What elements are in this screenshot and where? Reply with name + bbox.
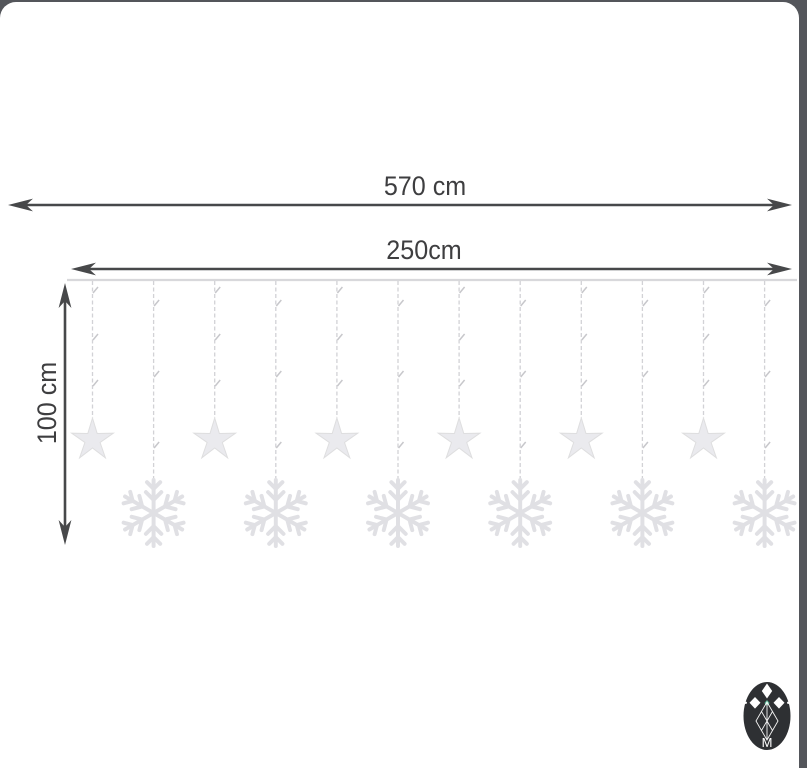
light-string <box>438 281 480 458</box>
led-bulb <box>460 287 465 293</box>
light-string <box>610 281 675 546</box>
label-overall-width: 570 cm <box>332 170 518 202</box>
led-bulb <box>337 380 342 386</box>
light-string <box>243 281 308 546</box>
diagram-svg: M <box>0 0 807 768</box>
light-string <box>488 281 553 546</box>
star-ornament <box>316 418 358 458</box>
led-bulb <box>276 442 281 448</box>
led-bulb <box>582 334 587 340</box>
led-bulb <box>215 334 220 340</box>
brand-logo: M <box>744 682 791 750</box>
led-bulb <box>154 371 159 377</box>
snowflake-ornament <box>243 480 308 546</box>
led-bulb <box>399 442 404 448</box>
snowflake-ornament <box>732 480 797 546</box>
led-bulb <box>521 371 526 377</box>
snowflake-ornament <box>121 480 186 546</box>
led-bulb <box>337 334 342 340</box>
light-string <box>732 281 797 546</box>
light-string <box>560 281 602 458</box>
led-bulb <box>521 442 526 448</box>
led-bulb <box>582 287 587 293</box>
star-ornament <box>438 418 480 458</box>
light-string <box>194 281 236 458</box>
snowflake-ornament <box>366 480 431 546</box>
led-bulb <box>399 371 404 377</box>
led-bulb <box>93 334 98 340</box>
led-bulb <box>521 300 526 306</box>
led-bulb <box>93 380 98 386</box>
led-bulb <box>765 300 770 306</box>
led-bulb <box>215 287 220 293</box>
led-bulb <box>704 380 709 386</box>
led-bulb <box>582 380 587 386</box>
label-drop-height: 100 cm <box>31 310 63 496</box>
led-bulb <box>276 300 281 306</box>
led-bulb <box>765 442 770 448</box>
led-bulb <box>460 380 465 386</box>
led-bulb <box>154 300 159 306</box>
snowflake-ornament <box>488 480 553 546</box>
led-bulb <box>643 442 648 448</box>
product-image: M 570 cm 250cm 100 cm <box>0 0 807 768</box>
light-string <box>366 281 431 546</box>
light-string <box>316 281 358 458</box>
led-bulb <box>154 442 159 448</box>
led-bulb <box>643 300 648 306</box>
led-bulb <box>399 300 404 306</box>
brand-logo-letter: M <box>762 735 773 750</box>
star-ornament <box>560 418 602 458</box>
led-bulb <box>276 371 281 377</box>
led-bulb <box>643 371 648 377</box>
led-bulb <box>337 287 342 293</box>
light-string <box>72 281 114 458</box>
led-bulb <box>704 334 709 340</box>
label-curtain-width: 250cm <box>331 234 517 266</box>
led-bulb <box>704 287 709 293</box>
led-bulb <box>765 371 770 377</box>
snowflake-ornament <box>610 480 675 546</box>
led-bulb <box>93 287 98 293</box>
light-string <box>683 281 725 458</box>
star-ornament <box>72 418 114 458</box>
light-string <box>121 281 186 546</box>
led-bulb <box>460 334 465 340</box>
star-ornament <box>194 418 236 458</box>
light-strings <box>72 281 797 546</box>
led-bulb <box>215 380 220 386</box>
star-ornament <box>683 418 725 458</box>
